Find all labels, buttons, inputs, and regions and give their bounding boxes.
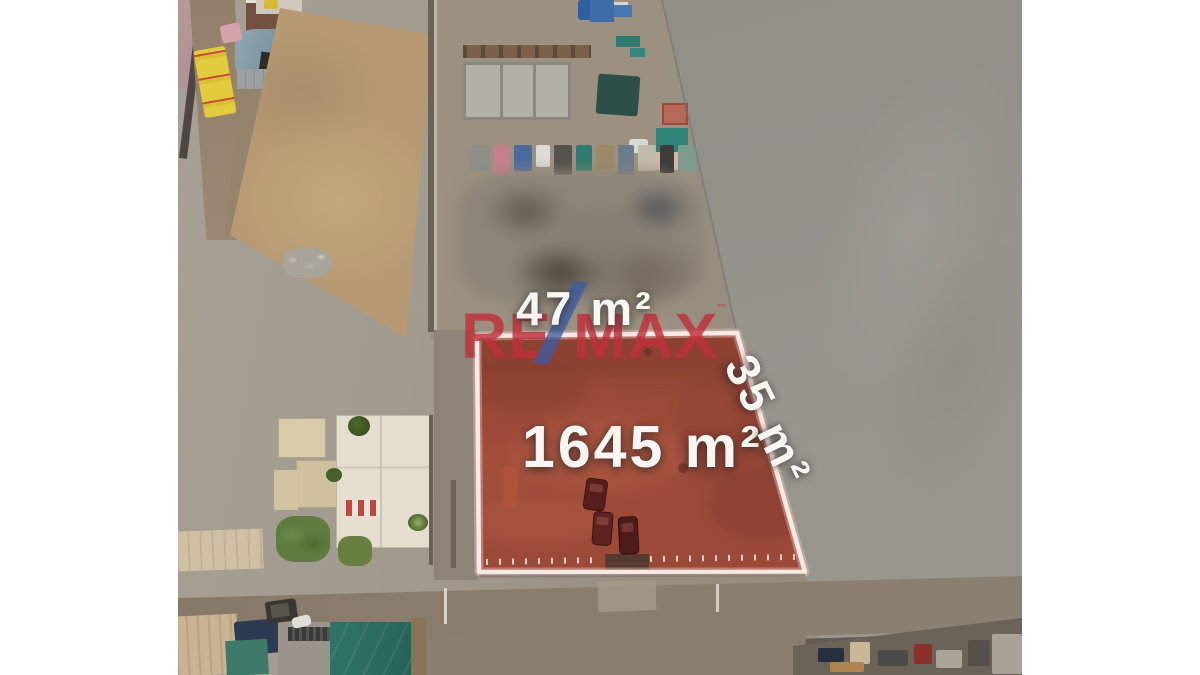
trench-mark xyxy=(503,467,518,507)
maroon-car xyxy=(618,517,639,555)
screenshot-canvas: RE MAX ™ 47 m² 1645 m² 35 m² xyxy=(0,0,1200,675)
area-label-front-width: 47 m² xyxy=(516,281,654,336)
utility-pole xyxy=(716,584,719,612)
utility-pole xyxy=(444,588,447,624)
trademark-symbol: ™ xyxy=(717,303,727,314)
plot-shadow xyxy=(479,575,805,576)
aerial-photo: RE MAX ™ 47 m² 1645 m² 35 m² xyxy=(178,0,1022,675)
field-boundary-line xyxy=(662,0,737,333)
maroon-car xyxy=(592,511,613,545)
maroon-car xyxy=(583,478,608,512)
area-label-total: 1645 m² xyxy=(522,413,763,481)
